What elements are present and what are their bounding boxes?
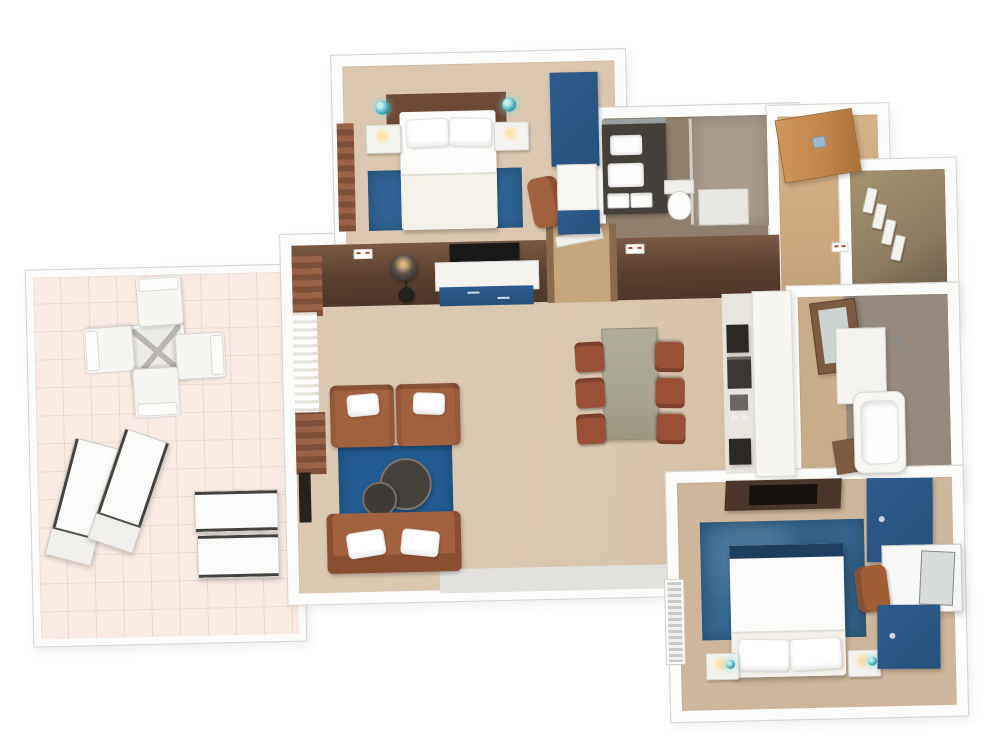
balcony-chair — [175, 331, 228, 380]
wall-dark-panel — [299, 472, 312, 522]
curtain-brown-top — [292, 254, 323, 317]
duvet-fold-line — [731, 629, 845, 634]
curtain-brown-mid — [295, 412, 326, 475]
chair-back — [84, 331, 100, 372]
microwave — [727, 356, 752, 389]
balcony-chair — [132, 367, 181, 420]
bedroom1-curtain — [337, 123, 356, 231]
kitchenette-wall-counter — [752, 290, 796, 477]
bedroom1-bed — [399, 110, 498, 230]
bed-pillow — [405, 117, 450, 148]
sink — [608, 163, 645, 188]
throw-pillow — [346, 393, 380, 418]
bathroom1-vanity — [602, 123, 668, 214]
door-jamb-left — [546, 225, 555, 303]
chair-back — [138, 276, 179, 292]
throw-pillow — [400, 528, 440, 558]
chair-back — [137, 402, 178, 417]
mini-fridge — [729, 438, 752, 464]
sun-lounger — [197, 533, 280, 579]
bedroom2-dresser — [724, 478, 841, 511]
bed-foot-runner — [729, 543, 843, 559]
coffee-machine — [726, 324, 749, 352]
dresser-top-inset — [749, 484, 818, 506]
towel — [630, 193, 652, 208]
dining-chair — [656, 414, 685, 444]
towel — [607, 193, 629, 208]
armchair — [330, 384, 395, 447]
wall-plate — [831, 242, 848, 252]
armchair — [396, 383, 461, 446]
sink — [610, 135, 642, 156]
dining-chair — [574, 341, 605, 373]
dining-chair — [656, 378, 685, 408]
dining-chair — [575, 377, 606, 409]
floor-plan — [0, 0, 1000, 750]
drawer-handle — [498, 297, 510, 299]
wall-plate — [625, 244, 644, 254]
bedroom1-wardrobe-cabinet — [557, 164, 598, 215]
wardrobe-handle — [879, 516, 885, 522]
media-console-drawers — [439, 285, 533, 306]
dining-chair — [576, 413, 607, 445]
bed-pillow — [789, 636, 843, 671]
tub-basin — [860, 400, 899, 465]
throw-pillow — [345, 528, 387, 560]
balcony-chair — [135, 274, 185, 327]
sofa — [326, 511, 461, 574]
shower-tray — [698, 188, 749, 225]
bedroom1-wardrobe-upper — [549, 72, 599, 167]
bedroom2-dresser-blue — [877, 605, 940, 669]
bedroom1-wardrobe-lower — [558, 210, 601, 235]
shower-fixture-arm — [895, 334, 899, 348]
tray — [730, 394, 748, 410]
keycard-lock — [812, 136, 827, 149]
bedroom2-bed — [729, 543, 846, 678]
wall-plate — [353, 249, 372, 259]
chair-back — [210, 334, 225, 375]
floor-plan-stage — [0, 0, 1000, 750]
dining-chair — [655, 342, 684, 372]
desk-nook — [881, 544, 963, 614]
bed-pillow — [449, 117, 492, 147]
toilet-bowl — [667, 191, 692, 221]
bed-pillow — [738, 639, 790, 672]
tv-screen — [449, 243, 519, 263]
duvet-fold-line — [401, 172, 497, 176]
entry-door — [775, 108, 862, 184]
living-doorway — [546, 223, 618, 303]
dresser-handle — [889, 633, 895, 639]
balcony-chair — [82, 325, 135, 375]
drawer-handle — [467, 291, 479, 293]
bedroom2-window — [665, 580, 685, 664]
bathtub — [853, 391, 907, 474]
dining-table — [601, 327, 660, 440]
throw-pillow — [413, 392, 446, 415]
sun-lounger — [194, 489, 279, 533]
curtain-sheer — [293, 312, 319, 417]
desk-mirror — [919, 550, 956, 606]
